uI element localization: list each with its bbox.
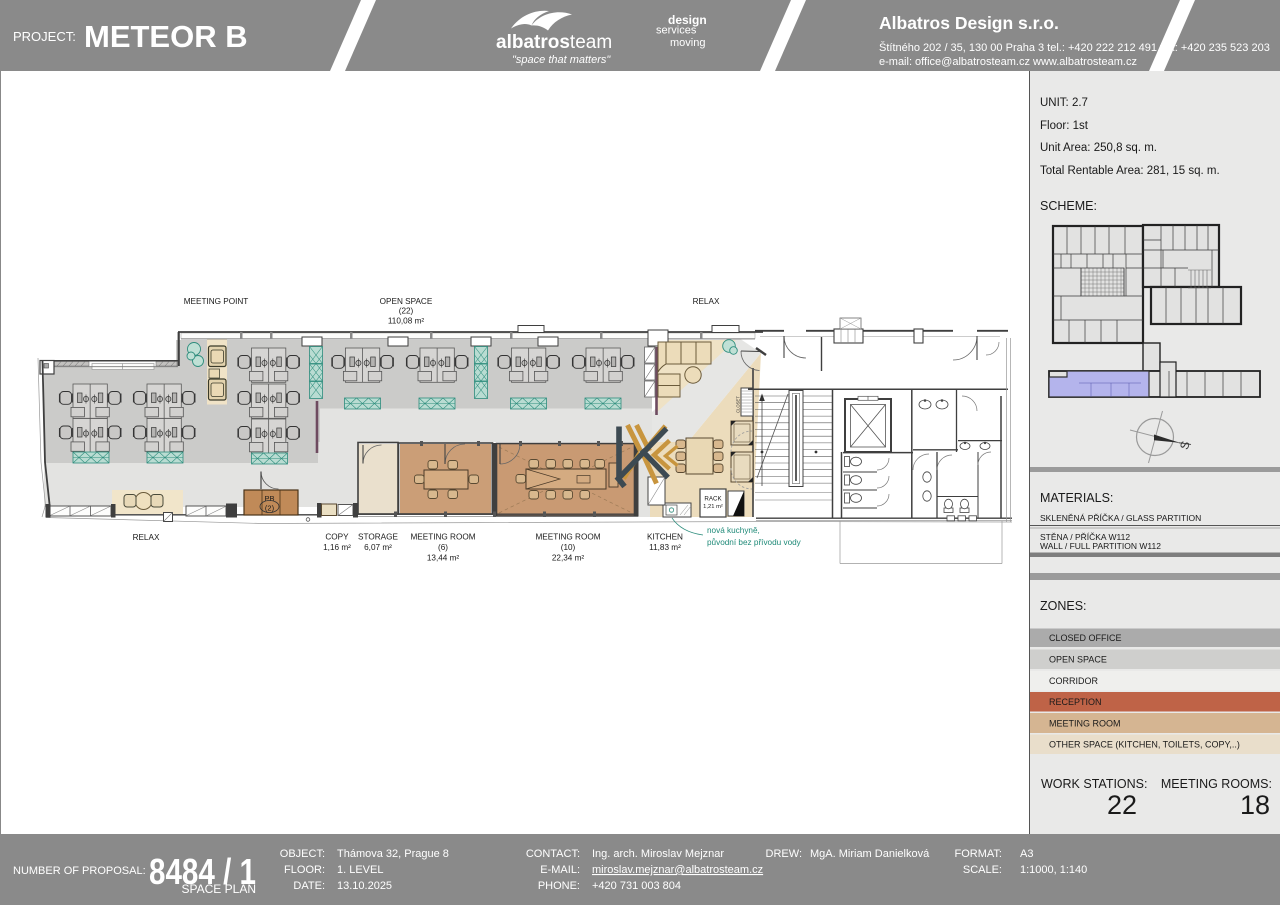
svg-text:S: S [1177, 439, 1193, 451]
svg-text:22: 22 [1107, 790, 1137, 820]
svg-text:"space that matters": "space that matters" [512, 54, 611, 66]
svg-text:RELAX: RELAX [693, 297, 720, 306]
svg-text:SKLENĚNÁ PŘÍČKA / GLASS PARTIT: SKLENĚNÁ PŘÍČKA / GLASS PARTITION [1040, 513, 1201, 523]
svg-text:SPACE PLAN: SPACE PLAN [182, 882, 256, 896]
svg-text:PB: PB [264, 494, 274, 503]
svg-text:NUMBER OF PROPOSAL:: NUMBER OF PROPOSAL: [13, 865, 146, 877]
svg-text:11,83 m²: 11,83 m² [649, 543, 681, 552]
svg-text:(6): (6) [438, 543, 448, 552]
svg-text:KITCHEN: KITCHEN [647, 533, 683, 542]
svg-text:OBJECT:: OBJECT: [280, 848, 325, 860]
svg-text:MEETING ROOM: MEETING ROOM [535, 533, 600, 542]
svg-text:(2): (2) [265, 504, 275, 513]
svg-text:ZONES:: ZONES: [1040, 599, 1087, 613]
svg-text:MATERIALS:: MATERIALS: [1040, 491, 1113, 505]
svg-text:services: services [656, 25, 697, 37]
svg-text:+420 731 003 804: +420 731 003 804 [592, 880, 681, 892]
svg-text:MEETING ROOM: MEETING ROOM [410, 533, 475, 542]
svg-text:OPEN SPACE: OPEN SPACE [1049, 655, 1107, 665]
svg-text:OTHER SPACE (KITCHEN, TOILETS,: OTHER SPACE (KITCHEN, TOILETS, COPY,..) [1049, 740, 1240, 750]
svg-text:WALL / FULL PARTITION W112: WALL / FULL PARTITION W112 [1040, 541, 1161, 551]
svg-text:A3: A3 [1020, 848, 1033, 860]
svg-text:E-MAIL:: E-MAIL: [540, 864, 580, 876]
svg-text:Thámova 32, Prague 8: Thámova 32, Prague 8 [337, 848, 449, 860]
svg-text:původní bez přívodu vody: původní bez přívodu vody [707, 537, 802, 547]
svg-text:MgA. Miriam Danielková: MgA. Miriam Danielková [810, 848, 930, 860]
svg-text:PROJECT:: PROJECT: [13, 29, 76, 44]
svg-text:13.10.2025: 13.10.2025 [337, 880, 392, 892]
svg-text:COPY: COPY [325, 533, 349, 542]
svg-text:110,08 m²: 110,08 m² [388, 317, 425, 326]
svg-text:STORAGE: STORAGE [358, 533, 398, 542]
svg-text:1. LEVEL: 1. LEVEL [337, 864, 383, 876]
svg-text:Albatros Design s.r.o.: Albatros Design s.r.o. [879, 13, 1059, 33]
svg-text:13,44 m²: 13,44 m² [427, 554, 460, 563]
svg-text:CLOSET: CLOSET [736, 396, 741, 413]
svg-text:moving: moving [670, 37, 705, 49]
svg-text:nová kuchyně,: nová kuchyně, [707, 526, 760, 535]
svg-text:(22): (22) [399, 307, 414, 316]
svg-text:1,16 m²: 1,16 m² [323, 543, 351, 552]
svg-text:e-mail: office@albatrosteam.cz: e-mail: office@albatrosteam.cz www.albat… [879, 56, 1137, 68]
svg-text:OPEN SPACE: OPEN SPACE [380, 297, 433, 306]
svg-text:SCALE:: SCALE: [963, 864, 1002, 876]
svg-text:albatrosteam: albatrosteam [496, 32, 612, 53]
svg-text:Total Rentable Area: 281, 15 s: Total Rentable Area: 281, 15 sq. m. [1040, 165, 1220, 177]
svg-text:UNIT: 2.7: UNIT: 2.7 [1040, 97, 1088, 109]
svg-text:18: 18 [1240, 790, 1270, 820]
svg-text:METEOR B: METEOR B [84, 19, 248, 54]
svg-text:1,21 m²: 1,21 m² [703, 504, 723, 510]
svg-text:CONTACT:: CONTACT: [526, 848, 580, 860]
svg-text:MEETING ROOM: MEETING ROOM [1049, 719, 1121, 729]
svg-text:1:1000, 1:140: 1:1000, 1:140 [1020, 864, 1087, 876]
svg-text:Unit Area: 250,8 sq. m.: Unit Area: 250,8 sq. m. [1040, 142, 1157, 154]
svg-text:Štítného 202 / 35, 130 00 Prah: Štítného 202 / 35, 130 00 Praha 3 tel.: … [879, 41, 1270, 54]
svg-text:22,34 m²: 22,34 m² [552, 554, 585, 563]
svg-text:Floor: 1st: Floor: 1st [1040, 120, 1089, 132]
svg-text:FLOOR:: FLOOR: [284, 864, 325, 876]
svg-text:miroslav.mejznar@albatrosteam.: miroslav.mejznar@albatrosteam.cz [592, 864, 763, 876]
svg-text:DATE:: DATE: [293, 880, 325, 892]
svg-text:SCHEME:: SCHEME: [1040, 199, 1097, 213]
svg-text:PHONE:: PHONE: [538, 880, 580, 892]
svg-text:MEETING POINT: MEETING POINT [184, 297, 249, 306]
svg-text:MEETING ROOMS:: MEETING ROOMS: [1161, 777, 1272, 791]
svg-text:(10): (10) [561, 543, 576, 552]
svg-text:CLOSED OFFICE: CLOSED OFFICE [1049, 633, 1122, 643]
svg-text:WORK STATIONS:: WORK STATIONS: [1041, 777, 1147, 791]
svg-text:RACK: RACK [704, 496, 722, 503]
svg-text:RECEPTION: RECEPTION [1049, 697, 1102, 707]
svg-text:6,07 m²: 6,07 m² [364, 543, 392, 552]
svg-text:CORRIDOR: CORRIDOR [1049, 676, 1098, 686]
svg-text:RELAX: RELAX [133, 533, 160, 542]
svg-text:Ing. arch. Miroslav Mejznar: Ing. arch. Miroslav Mejznar [592, 848, 724, 860]
svg-text:FORMAT:: FORMAT: [955, 848, 1002, 860]
svg-text:DREW:: DREW: [766, 848, 802, 860]
